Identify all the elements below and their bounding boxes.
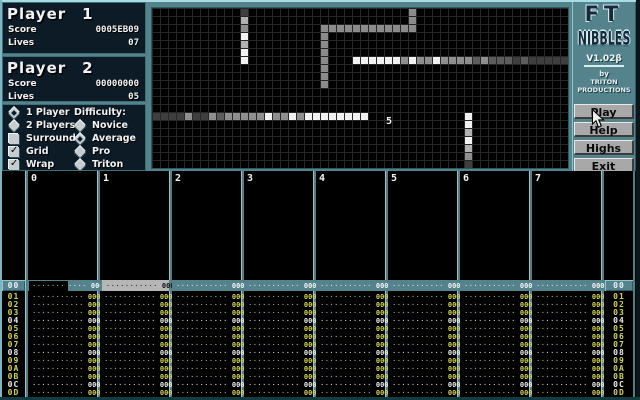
volume-dots: ···· [497,389,516,397]
options-right: Difficulty: NoviceAverageProTriton [74,106,144,171]
pattern-cell[interactable]: ···········000 [172,309,243,317]
note-instrument-dots: ······· [320,389,353,397]
note-instrument-dots: ······· [104,373,137,381]
pattern-cell[interactable]: ···········000 [100,309,171,317]
pattern-cell-current-ch3[interactable]: ···········000 [244,280,315,291]
note-instrument-dots: ······· [464,365,497,373]
pattern-cell[interactable]: ···········000 [388,365,459,373]
note-instrument-dots: ······· [248,341,281,349]
volume-dots: ···· [137,309,156,317]
note-instrument-dots: ······· [536,293,569,301]
volume-dots: ···· [425,357,444,365]
snake-2-cell [417,57,424,64]
volume-dots: ···· [137,293,156,301]
pattern-cell[interactable]: ···········000 [460,389,531,397]
effect-value: 000 [592,389,605,397]
wall-cell [321,73,328,80]
effect-value: 000 [376,357,389,365]
pattern-cell[interactable]: ···········000 [244,293,315,301]
note-instrument-dots: ······· [392,325,425,333]
effect-value: 000 [520,373,533,381]
note-instrument-dots: ······· [464,357,497,365]
note-instrument-dots: ······· [392,349,425,357]
pattern-cell[interactable]: ···········000 [532,333,603,341]
pattern-cell[interactable]: ···········000 [316,341,387,349]
pattern-cell[interactable]: ···········000 [388,389,459,397]
option-label: Average [92,133,136,144]
pattern-cell[interactable]: ···········000 [532,341,603,349]
pattern-cell[interactable]: ···········000 [244,333,315,341]
pattern-cell[interactable]: ···········000 [460,325,531,333]
effect-value: 000 [448,282,461,290]
pattern-cell-current-ch0[interactable]: ···········000 [28,280,99,291]
pattern-cell[interactable]: ···········000 [460,317,531,325]
note-instrument-dots: ······· [104,389,137,397]
note-instrument-dots: ······· [464,381,497,389]
volume-dots: ···· [497,349,516,357]
pattern-cell[interactable]: ···········000 [172,389,243,397]
snake-2-cell [433,57,440,64]
snake-2-cell [385,57,392,64]
snake-2-cell [553,57,560,64]
pattern-cell[interactable]: ···········000 [28,301,99,309]
pattern-cell[interactable]: ···········000 [100,381,171,389]
effect-value: 000 [232,282,245,290]
pattern-cell[interactable]: ···········000 [460,301,531,309]
pattern-cell[interactable]: ···········000 [172,301,243,309]
snake-3-cell [289,113,296,120]
pattern-cell[interactable]: ···········000 [532,365,603,373]
volume-dots: ···· [281,309,300,317]
pattern-cell[interactable]: ···········000 [28,325,99,333]
volume-dots: ···· [281,341,300,349]
volume-dots: ···· [137,333,156,341]
volume-dots: ···· [281,317,300,325]
pattern-cell[interactable]: ···········000 [244,325,315,333]
pattern-cell[interactable]: ···········000 [532,317,603,325]
snake-1-cell [241,25,248,32]
pattern-cell[interactable]: ···········000 [28,373,99,381]
pattern-cell[interactable]: ···········000 [172,325,243,333]
volume-dots: ···· [281,333,300,341]
note-instrument-dots: ······· [536,389,569,397]
pattern-cell-current-ch6[interactable]: ···········000 [460,280,531,291]
volume-dots: ···· [137,325,156,333]
highs-button[interactable]: Highs [574,140,634,155]
effect-value: 000 [448,309,461,317]
volume-dots: ···· [425,325,444,333]
pattern-cell[interactable]: ···········000 [460,357,531,365]
pattern-cell-current-ch1[interactable]: ···········000 [100,280,171,291]
note-instrument-dots: ······· [248,381,281,389]
note-instrument-dots: ······· [392,282,425,290]
pattern-cell[interactable]: ···········000 [532,301,603,309]
pattern-cell[interactable]: ···········000 [532,349,603,357]
option-label: 1 Player [26,107,70,118]
pattern-cell[interactable]: ···········000 [532,389,603,397]
pattern-cell[interactable]: ···········000 [172,373,243,381]
note-instrument-dots: ······· [176,389,209,397]
pattern-cell[interactable]: ···········000 [172,365,243,373]
note-instrument-dots: ······· [464,373,497,381]
pattern-cell[interactable]: ···········000 [388,341,459,349]
pattern-cell[interactable]: ···········000 [244,317,315,325]
pattern-cell[interactable]: ···········000 [28,341,99,349]
volume-dots: ···· [353,373,372,381]
channel-number: 6 [463,173,483,184]
player2-score-value: 00000000 [96,78,139,90]
wall-cell [321,41,328,48]
player1-title-name: Player [7,5,66,23]
pattern-cursor[interactable]: ······· [29,281,68,291]
note-instrument-dots: ······· [320,282,353,290]
pattern-cell[interactable]: ···········000 [316,333,387,341]
pattern-cell[interactable]: ···········000 [100,333,171,341]
pattern-cell[interactable]: ···········000 [100,389,171,397]
volume-dots: ···· [137,301,156,309]
volume-dots: ···· [137,341,156,349]
pattern-cell[interactable]: ···········000 [100,293,171,301]
note-instrument-dots: ······· [320,333,353,341]
pattern-cell[interactable]: ···········000 [244,341,315,349]
pattern-cell[interactable]: ···········000 [244,389,315,397]
window-edge-left [0,0,2,400]
volume-dots: ···· [209,389,228,397]
volume-dots: ···· [281,357,300,365]
volume-dots: ···· [281,282,300,290]
note-instrument-dots: ······· [392,341,425,349]
pattern-cell[interactable]: ···········000 [388,357,459,365]
effect-value: 000 [376,333,389,341]
volume-dots: ···· [569,317,588,325]
note-instrument-dots: ······· [248,333,281,341]
note-instrument-dots: ······· [320,373,353,381]
pattern-cell[interactable]: ···········000 [244,365,315,373]
effect-value: 000 [448,389,461,397]
pattern-cell[interactable]: ···········000 [244,357,315,365]
effect-value: 000 [232,293,245,301]
volume-dots: ···· [353,301,372,309]
pattern-cell-current-ch7[interactable]: ···········000 [532,280,603,291]
wall-cell [321,25,328,32]
effect-value: 000 [520,325,533,333]
player1-lives-label: Lives [8,37,34,49]
pattern-cell[interactable]: ···········000 [388,373,459,381]
pattern-cell[interactable]: ···········000 [172,293,243,301]
volume-dots: ···· [425,349,444,357]
pattern-cell[interactable]: ···········000 [100,317,171,325]
effect-value: 000 [376,373,389,381]
radio-difficulty-triton[interactable]: Triton [74,158,144,171]
pattern-cell-current-ch2[interactable]: ···········000 [172,280,243,291]
pattern-cell[interactable]: ···········000 [100,301,171,309]
pattern-cell[interactable]: ···········000 [316,293,387,301]
pattern-cell[interactable]: ···········000 [460,373,531,381]
pattern-cell[interactable]: ···········000 [388,301,459,309]
radio-2-players[interactable]: 2 Players [8,119,74,132]
pattern-cell[interactable]: ···········000 [532,309,603,317]
volume-dots: ···· [65,301,84,309]
pattern-cell[interactable]: ···········000 [316,349,387,357]
wall-cell [329,25,336,32]
pattern-cell[interactable]: ···········000 [100,357,171,365]
volume-dots: ···· [137,317,156,325]
player1-score-label: Score [8,24,37,36]
note-instrument-dots: ······· [32,317,65,325]
logo-panel: FT NIBBLES V1.02β by TRITON PRODUCTIONS … [572,0,636,171]
note-instrument-dots: ······· [248,282,281,290]
pattern-cell[interactable]: ···········000 [532,325,603,333]
pattern-cell[interactable]: ···········000 [100,341,171,349]
channel-number: 7 [535,173,555,184]
note-instrument-dots: ······· [320,349,353,357]
volume-dots: ···· [65,333,84,341]
volume-dots: ···· [68,282,87,290]
volume-dots: ···· [65,325,84,333]
pattern-cell[interactable]: ···········000 [532,357,603,365]
radio-difficulty-average[interactable]: Average [74,132,144,145]
volume-dots: ···· [425,309,444,317]
pattern-cell-current-ch5[interactable]: ···········000 [388,280,459,291]
player2-title-name: Player [7,59,66,77]
pattern-cell[interactable]: ···········000 [388,309,459,317]
effect-value: 000 [376,293,389,301]
pattern-cell[interactable]: ···········000 [532,293,603,301]
note-instrument-dots: ······· [248,293,281,301]
volume-dots: ···· [569,365,588,373]
snake-2-cell [561,57,568,64]
note-instrument-dots: ······· [32,293,65,301]
player2-lives-value: 05 [128,91,139,103]
snake-2-cell [409,57,416,64]
pattern-cell[interactable]: ···········000 [460,365,531,373]
note-instrument-dots: ······· [320,309,353,317]
volume-dots: ···· [425,365,444,373]
pattern-cell[interactable]: ···········000 [28,357,99,365]
volume-dots: ···· [281,381,300,389]
checkbox-grid[interactable]: Grid [8,145,74,158]
pattern-cell[interactable]: ···········000 [172,357,243,365]
pattern-cell[interactable]: ···········000 [172,349,243,357]
effect-value: 000 [160,357,173,365]
pattern-cell[interactable]: ···········000 [28,333,99,341]
pattern-cell[interactable]: ···········000 [244,309,315,317]
effect-value: 000 [376,282,389,290]
checkbox-surround[interactable]: Surround [8,132,74,145]
pattern-cell-current-ch4[interactable]: ···········000 [316,280,387,291]
note-instrument-dots: ······· [104,317,137,325]
note-instrument-dots: ······· [104,381,137,389]
note-instrument-dots: ······· [176,309,209,317]
wall-cell [393,25,400,32]
pattern-cell[interactable]: ···········000 [388,325,459,333]
wall-cell [353,25,360,32]
pattern-cell[interactable]: ···········000 [316,373,387,381]
pattern-cell[interactable]: ···········000 [172,317,243,325]
volume-dots: ···· [425,282,444,290]
volume-dots: ···· [137,381,156,389]
volume-dots: ···· [209,309,228,317]
options-panel: 1 Player2 PlayersSurroundGridWrap Diffic… [2,104,146,171]
note-instrument-dots: ······· [248,325,281,333]
volume-dots: ···· [137,357,156,365]
snake-2-cell [369,57,376,64]
volume-dots: ···· [425,389,444,397]
pattern-cell[interactable]: ···········000 [244,301,315,309]
pattern-cell[interactable]: ···········000 [460,349,531,357]
effect-value: 000 [88,309,101,317]
effect-value: 000 [376,317,389,325]
pattern-cell[interactable]: ···········000 [316,317,387,325]
effect-value: 000 [304,282,317,290]
note-instrument-dots: ······· [464,301,497,309]
effect-value: 000 [304,349,317,357]
effect-value: 000 [520,309,533,317]
difficulty-label: Difficulty: [74,106,144,119]
checkbox-icon [9,147,19,157]
pattern-cell[interactable]: ···········000 [172,381,243,389]
radio-icon [74,146,85,157]
note-instrument-dots: ······· [320,317,353,325]
pattern-cell[interactable]: ···········000 [100,349,171,357]
pattern-cell[interactable]: ···········000 [28,293,99,301]
pattern-cell[interactable]: ···········000 [100,365,171,373]
pattern-cell[interactable]: ···········000 [532,381,603,389]
pattern-cell[interactable]: ···········000 [28,349,99,357]
volume-dots: ···· [569,333,588,341]
pattern-cell[interactable]: ···········000 [316,389,387,397]
volume-dots: ···· [281,365,300,373]
pattern-cell[interactable]: ···········000 [244,381,315,389]
effect-value: 000 [520,357,533,365]
pattern-cell[interactable]: ···········000 [316,325,387,333]
wall-cell [409,9,416,16]
effect-value: 000 [304,317,317,325]
pattern-cell[interactable]: ···········000 [28,365,99,373]
pattern-cell[interactable]: ···········000 [388,381,459,389]
snake-3-cell [305,113,312,120]
note-instrument-dots: ······· [104,333,137,341]
note-instrument-dots: ······· [176,301,209,309]
snake-2-cell [353,57,360,64]
checkbox-icon [9,160,19,170]
snake-2-cell [505,57,512,64]
pattern-cell[interactable]: ···········000 [388,293,459,301]
pattern-cell[interactable]: ···········000 [316,301,387,309]
pattern-cell[interactable]: ···········000 [532,373,603,381]
volume-dots: ···· [281,373,300,381]
note-instrument-dots: ······· [320,365,353,373]
channel-number: 1 [103,173,123,184]
pattern-cell[interactable]: ···········000 [244,349,315,357]
note-instrument-dots: ······· [104,293,137,301]
snake-3-cell [161,113,168,120]
snake-4-cell [465,121,472,128]
pattern-cell[interactable]: ···········000 [244,373,315,381]
note-instrument-dots: ······· [392,333,425,341]
pattern-cell[interactable]: ···········000 [172,341,243,349]
pattern-cell[interactable]: ···········000 [316,381,387,389]
snake-2-cell [377,57,384,64]
effect-value: 000 [304,357,317,365]
note-instrument-dots: ······· [248,365,281,373]
pattern-cell[interactable]: ···········000 [28,381,99,389]
pattern-cell[interactable]: ···········000 [28,317,99,325]
wall-cell [361,25,368,32]
volume-dots: ···· [65,373,84,381]
option-label: Novice [92,120,128,131]
effect-value: 000 [448,293,461,301]
pattern-right-divider [633,171,635,397]
pattern-cell[interactable]: ···········000 [388,349,459,357]
top-region: Player 1 Score 0005EB09 Lives 07 Player … [0,0,640,171]
snake-3-cell [353,113,360,120]
pattern-cell[interactable]: ···········000 [172,333,243,341]
effect-value: 000 [592,325,605,333]
pattern-cell[interactable]: ···········000 [316,309,387,317]
pattern-cell[interactable]: ···········000 [460,309,531,317]
snake-4-cell [465,145,472,152]
volume-dots: ···· [497,333,516,341]
pattern-cell[interactable]: ···········000 [460,381,531,389]
volume-dots: ···· [353,381,372,389]
effect-value: 000 [160,349,173,357]
volume-dots: ···· [209,282,228,290]
pattern-cell[interactable]: ···········000 [316,365,387,373]
wall-cell [409,25,416,32]
radio-icon [8,107,19,118]
snake-2-cell [361,57,368,64]
snake-2-cell [545,57,552,64]
volume-dots: ···· [497,325,516,333]
channel-number: 4 [319,173,339,184]
pattern-cell[interactable]: ···········000 [388,317,459,325]
effect-value: 000 [88,341,101,349]
radio-difficulty-pro[interactable]: Pro [74,145,144,158]
pattern-cell[interactable]: ···········000 [100,373,171,381]
note-instrument-dots: ······· [464,341,497,349]
effect-value: 000 [448,357,461,365]
pattern-editor: 00 00 01234567···········000···········0… [0,171,640,400]
radio-1-player[interactable]: 1 Player [8,106,74,119]
checkbox-wrap[interactable]: Wrap [8,158,74,171]
effect-value: 000 [520,317,533,325]
food-number: 5 [384,116,394,127]
player2-title-number: 2 [82,59,93,77]
note-instrument-dots: ······· [464,349,497,357]
pattern-cell[interactable]: ···········000 [460,333,531,341]
effect-value: 000 [160,341,173,349]
option-label: Wrap [26,159,54,170]
snake-2-cell [401,57,408,64]
player2-title: Player 2 [2,56,146,77]
effect-value: 000 [160,365,173,373]
note-instrument-dots: ······· [392,309,425,317]
effect-value: 000 [160,381,173,389]
pattern-cell[interactable]: ···········000 [460,293,531,301]
volume-dots: ···· [281,389,300,397]
effect-value: 000 [160,309,173,317]
pattern-cell[interactable]: ···········000 [388,333,459,341]
pattern-cell[interactable]: ···········000 [28,309,99,317]
effect-value: 000 [160,389,173,397]
radio-difficulty-novice[interactable]: Novice [74,119,144,132]
pattern-cell[interactable]: ···········000 [28,389,99,397]
pattern-cell[interactable]: ···········000 [460,341,531,349]
snake-3-cell [345,113,352,120]
pattern-cell[interactable]: ···········000 [316,357,387,365]
pattern-cell[interactable]: ···········000 [100,325,171,333]
